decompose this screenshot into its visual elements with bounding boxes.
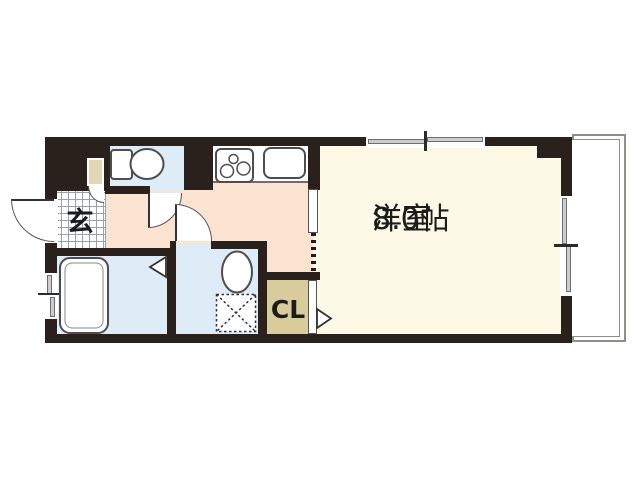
window-center-tick: [424, 131, 427, 151]
washroom-floor: [170, 244, 262, 338]
window-pane: [47, 275, 52, 295]
closet-door-panel: [308, 280, 317, 334]
sliding-door-icon: [308, 189, 318, 233]
entrance-door-icon: [11, 199, 54, 242]
floor-plan: 玄 洋室 8.0帖 CL: [0, 0, 640, 480]
shoe-cabinet: [87, 158, 104, 186]
wall-bottom: [45, 334, 572, 343]
wall-washroom-closet: [258, 244, 267, 336]
genkan-label: 玄: [60, 208, 100, 238]
window-pane: [566, 246, 571, 292]
toilet-room-floor: [108, 143, 186, 191]
window-center-tick: [38, 293, 60, 295]
closet-label: CL: [268, 296, 308, 324]
open-passage-dotted-line: [311, 233, 316, 273]
wall-washroom-top: [211, 241, 267, 249]
kitchen-counter: [213, 146, 310, 183]
window-pane: [368, 139, 425, 144]
bathroom-floor: [52, 252, 170, 338]
wall-closet-top: [258, 272, 320, 280]
main-room-floor: [313, 143, 567, 338]
wall-bathroom-top: [45, 248, 176, 256]
window-bathroom-icon: [44, 273, 58, 319]
balcony-inner-rail: [572, 139, 620, 337]
window-center-tick: [554, 244, 578, 247]
wall-bathroom-washroom: [167, 248, 176, 336]
wall-corner-top-right: [537, 137, 572, 158]
wall-toilet-bottom: [105, 186, 150, 194]
window-pane: [427, 137, 483, 142]
wall-toilet-kitchen: [184, 137, 213, 190]
wall-kitchen-main-room: [308, 137, 320, 190]
window-pane: [562, 198, 567, 244]
main-room-size: 8.0帖: [372, 203, 450, 236]
window-pane: [50, 297, 55, 317]
